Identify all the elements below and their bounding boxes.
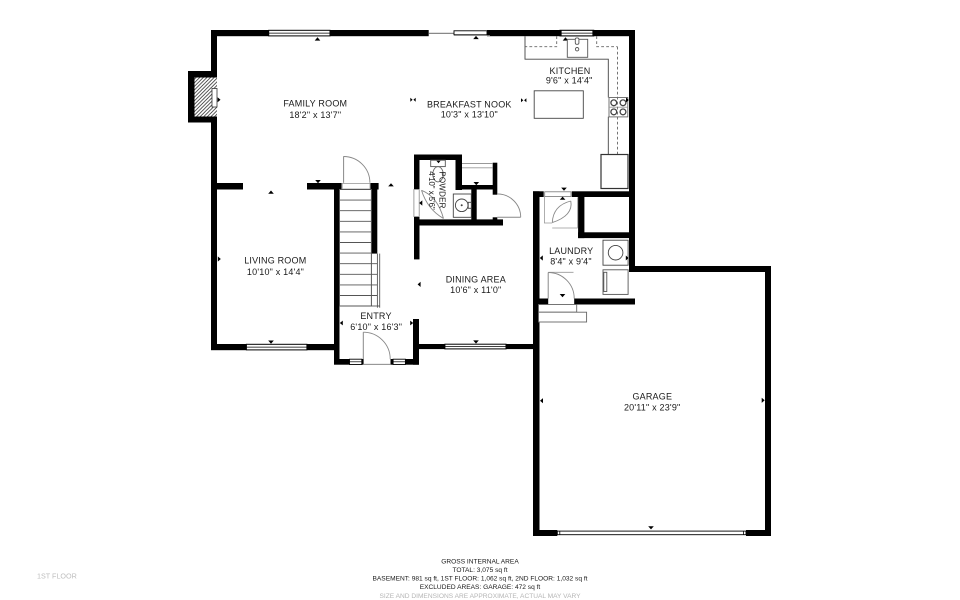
svg-text:4'10" x 5'6": 4'10" x 5'6" (427, 171, 436, 210)
svg-text:EXCLUDED AREAS: GARAGE: 472 sq: EXCLUDED AREAS: GARAGE: 472 sq ft (420, 584, 541, 591)
svg-text:6'10" x 16'3": 6'10" x 16'3" (350, 322, 402, 332)
svg-text:9'6" x 14'4": 9'6" x 14'4" (546, 76, 593, 86)
svg-text:FAMILY ROOM: FAMILY ROOM (283, 99, 347, 109)
svg-text:DINING AREA: DINING AREA (446, 275, 506, 285)
svg-text:BREAKFAST NOOK: BREAKFAST NOOK (427, 100, 512, 110)
svg-text:GARAGE: GARAGE (632, 391, 672, 401)
svg-text:LIVING ROOM: LIVING ROOM (244, 256, 306, 266)
svg-text:SIZE AND DIMENSIONS ARE APPROX: SIZE AND DIMENSIONS ARE APPROXIMATE, ACT… (379, 593, 581, 600)
svg-text:LAUNDRY: LAUNDRY (549, 246, 593, 256)
svg-text:18'2" x 13'7": 18'2" x 13'7" (289, 110, 341, 120)
svg-text:POWDER: POWDER (438, 171, 447, 208)
svg-text:TOTAL: 3,075 sq ft: TOTAL: 3,075 sq ft (452, 567, 507, 574)
svg-text:8'4" x 9'4": 8'4" x 9'4" (550, 257, 592, 267)
svg-text:ENTRY: ENTRY (360, 311, 391, 321)
svg-text:1ST FLOOR: 1ST FLOOR (37, 572, 77, 581)
svg-text:10'3" x 13'10": 10'3" x 13'10" (441, 110, 498, 120)
svg-text:20'11" x 23'9": 20'11" x 23'9" (624, 403, 681, 413)
svg-text:GROSS INTERNAL AREA: GROSS INTERNAL AREA (441, 559, 519, 566)
svg-text:10'10" x 14'4": 10'10" x 14'4" (247, 267, 304, 277)
svg-text:BASEMENT: 981 sq ft, 1ST FLOOR: BASEMENT: 981 sq ft, 1ST FLOOR: 1,062 sq… (373, 576, 588, 583)
svg-text:KITCHEN: KITCHEN (550, 66, 591, 76)
svg-text:10'6" x 11'0": 10'6" x 11'0" (450, 285, 501, 295)
